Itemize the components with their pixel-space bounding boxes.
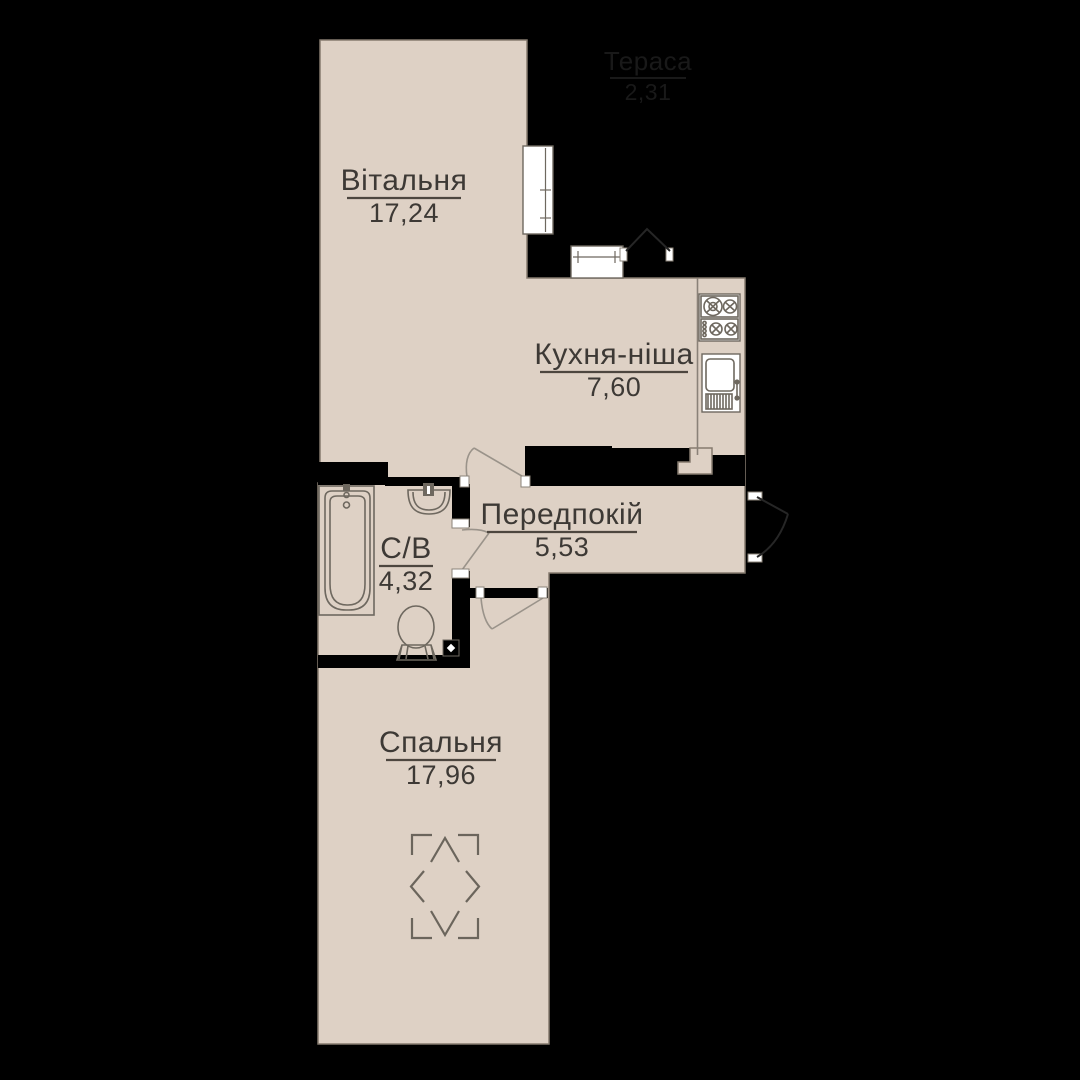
- room-name: Вітальня: [341, 164, 468, 197]
- room-area: 17,24: [369, 198, 439, 228]
- label-bathroom: С/В 4,32: [379, 532, 434, 596]
- floor-plan: Вітальня 17,24 Кухня-ніша 7,60 Передпокі…: [0, 0, 1080, 1080]
- room-name: Передпокій: [481, 498, 644, 531]
- room-area: 2,31: [625, 79, 672, 105]
- living-room-window: [523, 146, 553, 234]
- vent-shaft: [443, 640, 459, 656]
- bathtub-faucet-icon: [343, 484, 350, 491]
- room-area: 4,32: [379, 566, 434, 596]
- sink-faucet-icon: [734, 379, 739, 384]
- kitchen-window: [571, 246, 623, 278]
- floor-plan-canvas: Вітальня 17,24 Кухня-ніша 7,60 Передпокі…: [0, 0, 1080, 1080]
- room-area: 17,96: [406, 760, 476, 790]
- gas-stove: [699, 294, 740, 341]
- room-name: Кухня-ніша: [534, 338, 693, 371]
- room-area: 5,53: [535, 532, 590, 562]
- room-name: Спальня: [379, 726, 503, 759]
- kitchen-sink: [702, 354, 740, 412]
- room-name: С/В: [380, 532, 432, 565]
- room-name: Тераса: [604, 46, 692, 76]
- room-area: 7,60: [587, 372, 642, 402]
